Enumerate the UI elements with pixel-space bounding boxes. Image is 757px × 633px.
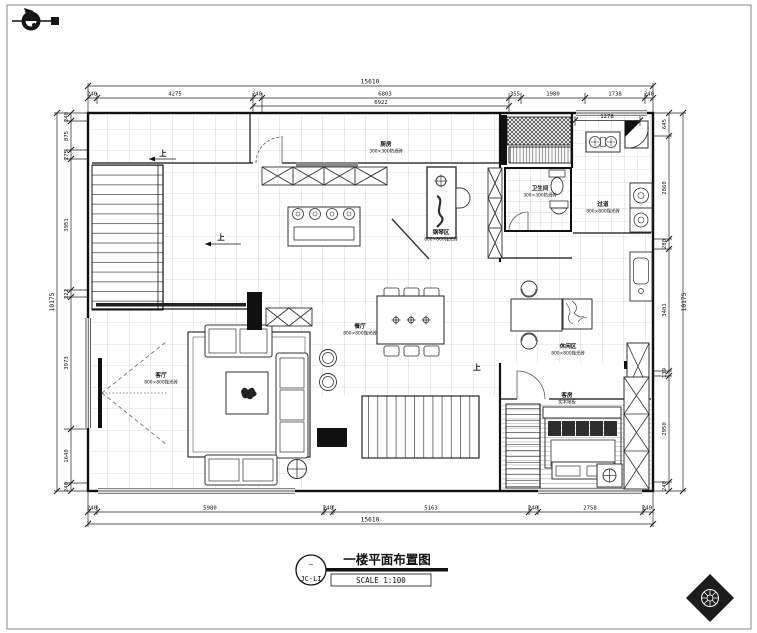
svg-text:800×800抛光砖: 800×800抛光砖 — [551, 350, 585, 357]
tv-icon — [98, 358, 102, 428]
tv-wall — [247, 292, 262, 330]
svg-text:1640: 1640 — [64, 449, 70, 462]
svg-text:240: 240 — [642, 506, 652, 512]
title-underline — [326, 568, 448, 572]
room-label-hall: 过道 — [597, 200, 609, 208]
svg-text:240: 240 — [252, 92, 262, 98]
staircase-lower — [362, 396, 479, 458]
room-label-piano: 钢琴区 — [433, 228, 450, 236]
svg-text:10175: 10175 — [681, 292, 688, 311]
svg-text:645: 645 — [662, 119, 668, 129]
side-cabinet — [266, 308, 312, 326]
svg-text:2860: 2860 — [662, 181, 668, 194]
up-label: 上 — [473, 362, 481, 372]
svg-text:240: 240 — [64, 112, 70, 122]
svg-text:5980: 5980 — [203, 506, 216, 512]
svg-text:275: 275 — [64, 150, 70, 160]
staircase-main — [92, 165, 163, 310]
room-label-leisure: 休闲区 — [559, 342, 577, 350]
toilet-icon — [551, 178, 563, 195]
svg-text:4275: 4275 — [168, 92, 181, 98]
svg-text:800×800抛光砖: 800×800抛光砖 — [424, 236, 458, 243]
svg-text:10175: 10175 — [49, 292, 56, 311]
svg-text:240: 240 — [662, 481, 668, 491]
up-label: 上 — [159, 148, 167, 158]
partition-cabinet — [488, 168, 502, 258]
svg-text:800×800抛光砖: 800×800抛光砖 — [343, 330, 377, 337]
svg-text:3951: 3951 — [64, 218, 70, 231]
room-label-dining: 餐厅 — [353, 322, 366, 330]
room-label-bath: 卫生间 — [532, 184, 549, 192]
toilet-tank — [549, 170, 565, 177]
marble-panel — [563, 299, 592, 329]
room-label-kitchen: 厨房 — [380, 140, 392, 148]
drawing-scale: SCALE 1:100 — [356, 576, 406, 585]
drawing-canvas: 上 上 上 厨房 300×300防滑砖 钢琴区 800×800抛光砖 卫生间 3… — [0, 0, 757, 633]
svg-text:800×800抛光砖: 800×800抛光砖 — [586, 208, 620, 215]
svg-text:300×300防滑砖: 300×300防滑砖 — [523, 192, 557, 199]
svg-text:355: 355 — [510, 92, 520, 98]
floor-plan: 上 上 上 厨房 300×300防滑砖 钢琴区 800×800抛光砖 卫生间 3… — [0, 0, 757, 633]
corner-logo-icon — [686, 574, 734, 622]
svg-text:222: 222 — [64, 289, 70, 299]
headboard — [543, 407, 621, 418]
svg-text:6803: 6803 — [378, 92, 391, 98]
room-label-bedroom: 客房 — [560, 391, 573, 399]
svg-text:5163: 5163 — [424, 506, 437, 512]
drawing-code: JC-LI — [300, 575, 321, 583]
svg-text:2950: 2950 — [662, 422, 668, 435]
svg-text:240: 240 — [64, 482, 70, 492]
svg-text:1980: 1980 — [546, 92, 559, 98]
svg-text:139: 139 — [662, 368, 668, 378]
shoe-cabinet — [509, 147, 571, 163]
svg-text:2758: 2758 — [583, 506, 597, 512]
bedroom-step-strip — [506, 404, 540, 488]
up-label: 上 — [217, 232, 225, 242]
leisure-table — [511, 299, 562, 331]
svg-text:240: 240 — [87, 506, 97, 512]
bedroom — [543, 377, 649, 489]
svg-text:1278: 1278 — [600, 114, 614, 120]
svg-text:1738: 1738 — [608, 92, 622, 98]
bar-table — [288, 207, 360, 246]
svg-text:300×300防滑砖: 300×300防滑砖 — [369, 148, 403, 155]
north-arrow-icon — [12, 8, 59, 31]
svg-text:280: 280 — [662, 239, 668, 249]
svg-text:15610: 15610 — [361, 79, 380, 86]
svg-text:实木地板: 实木地板 — [558, 399, 576, 406]
svg-text:3401: 3401 — [662, 303, 668, 316]
svg-text:800×800抛光砖: 800×800抛光砖 — [144, 379, 178, 386]
svg-text:875: 875 — [64, 131, 70, 141]
svg-text:240: 240 — [87, 92, 97, 98]
living-beam — [96, 303, 246, 307]
svg-text:3973: 3973 — [64, 356, 70, 369]
stair-landing — [317, 428, 347, 447]
room-label-living: 客厅 — [154, 371, 167, 379]
svg-text:15610: 15610 — [361, 517, 380, 524]
drawing-title: 一楼平面布置图 — [343, 552, 431, 567]
svg-text:240: 240 — [644, 92, 654, 98]
svg-text:6922: 6922 — [374, 100, 387, 106]
entry-porch — [507, 117, 571, 163]
title-block: — JC-LI 一楼平面布置图 SCALE 1:100 — [296, 552, 448, 586]
svg-text:240: 240 — [323, 506, 333, 512]
bathroom — [505, 168, 571, 231]
svg-text:240: 240 — [528, 506, 538, 512]
